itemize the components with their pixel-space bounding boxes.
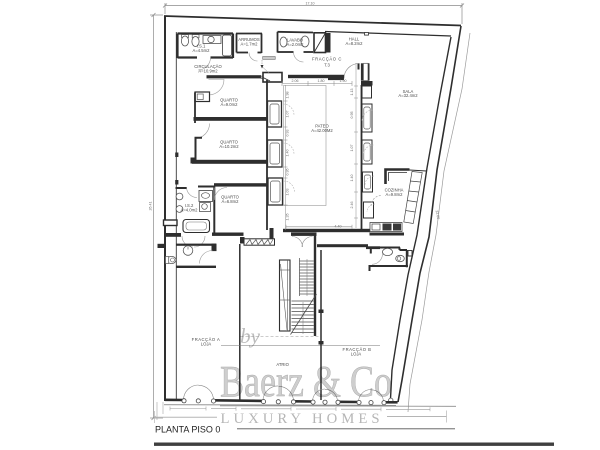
svg-text:1.35: 1.35 bbox=[286, 214, 290, 221]
svg-text:A=1.7m2: A=1.7m2 bbox=[241, 42, 259, 47]
svg-text:Baerz & Co: Baerz & Co bbox=[220, 357, 392, 406]
svg-text:A=4.5m2: A=4.5m2 bbox=[193, 48, 211, 53]
svg-text:A=42.00M2: A=42.00M2 bbox=[311, 128, 333, 133]
svg-text:1.40: 1.40 bbox=[350, 175, 354, 182]
svg-text:LOJA: LOJA bbox=[351, 351, 362, 356]
svg-text:4.40: 4.40 bbox=[335, 225, 342, 229]
svg-text:PLANTA PISO 0: PLANTA PISO 0 bbox=[155, 425, 220, 435]
svg-text:A=6.8m2: A=6.8m2 bbox=[222, 199, 240, 204]
svg-text:A=9.0m2: A=9.0m2 bbox=[221, 102, 239, 107]
svg-text:0.95: 0.95 bbox=[350, 112, 354, 119]
svg-text:0.93: 0.93 bbox=[286, 130, 290, 137]
svg-text:A=10.9m2: A=10.9m2 bbox=[198, 69, 218, 74]
svg-text:1.07: 1.07 bbox=[350, 145, 354, 152]
svg-text:1.40: 1.40 bbox=[286, 150, 290, 157]
svg-text:2.46: 2.46 bbox=[350, 202, 354, 209]
svg-text:T.3: T.3 bbox=[324, 63, 330, 68]
svg-text:1.80: 1.80 bbox=[318, 79, 325, 83]
svg-text:1.03: 1.03 bbox=[286, 189, 290, 196]
svg-text:A=9.8m2: A=9.8m2 bbox=[386, 192, 404, 197]
svg-text:1.07: 1.07 bbox=[286, 111, 290, 118]
svg-text:1.98: 1.98 bbox=[286, 92, 290, 99]
svg-text:2.06: 2.06 bbox=[292, 79, 299, 83]
svg-text:0.95: 0.95 bbox=[286, 169, 290, 176]
svg-text:by: by bbox=[240, 324, 261, 348]
svg-text:A=10.2m2: A=10.2m2 bbox=[219, 144, 239, 149]
svg-text:FRACÇÃO C: FRACÇÃO C bbox=[312, 57, 342, 62]
svg-text:1.90: 1.90 bbox=[340, 79, 347, 83]
svg-text:A=32.4m2: A=32.4m2 bbox=[398, 93, 418, 98]
svg-text:A=2.0m2: A=2.0m2 bbox=[287, 42, 305, 47]
svg-text:1.13: 1.13 bbox=[350, 89, 354, 96]
svg-text:LOJA: LOJA bbox=[201, 341, 212, 346]
svg-text:LUXURY HOMES: LUXURY HOMES bbox=[221, 411, 384, 427]
svg-text:26.41: 26.41 bbox=[149, 202, 153, 211]
svg-text:17.10: 17.10 bbox=[306, 2, 315, 6]
svg-text:A=4.0m2: A=4.0m2 bbox=[181, 208, 199, 213]
svg-text:A=8.2m2: A=8.2m2 bbox=[346, 41, 364, 46]
